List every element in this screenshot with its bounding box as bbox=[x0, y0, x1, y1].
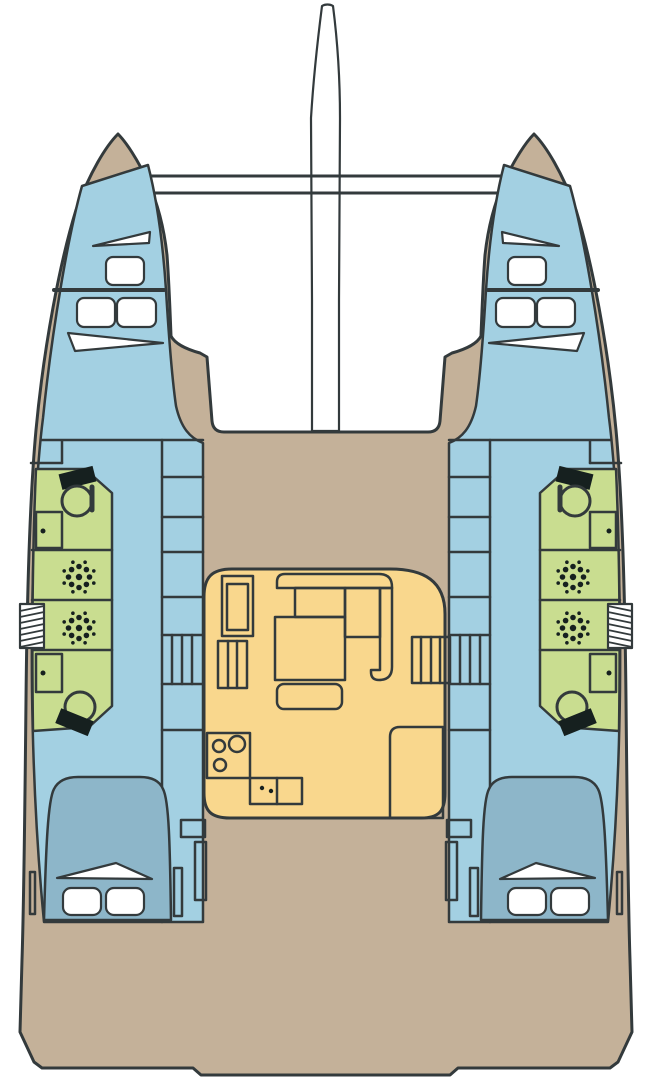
bow-hatch bbox=[77, 298, 115, 327]
deck-plan-svg bbox=[0, 0, 652, 1080]
louver-locker-icon bbox=[20, 604, 44, 648]
bow-hatch bbox=[106, 257, 144, 285]
bow-hatch bbox=[117, 298, 156, 327]
catamaran-deck-plan bbox=[0, 0, 652, 1080]
pillow bbox=[63, 888, 101, 915]
pillow bbox=[106, 888, 144, 915]
salon bbox=[204, 569, 450, 818]
salon-floor bbox=[204, 569, 445, 818]
starboard-hull-interior bbox=[446, 165, 632, 922]
mast bbox=[311, 5, 340, 432]
port-hull-interior bbox=[20, 165, 206, 922]
